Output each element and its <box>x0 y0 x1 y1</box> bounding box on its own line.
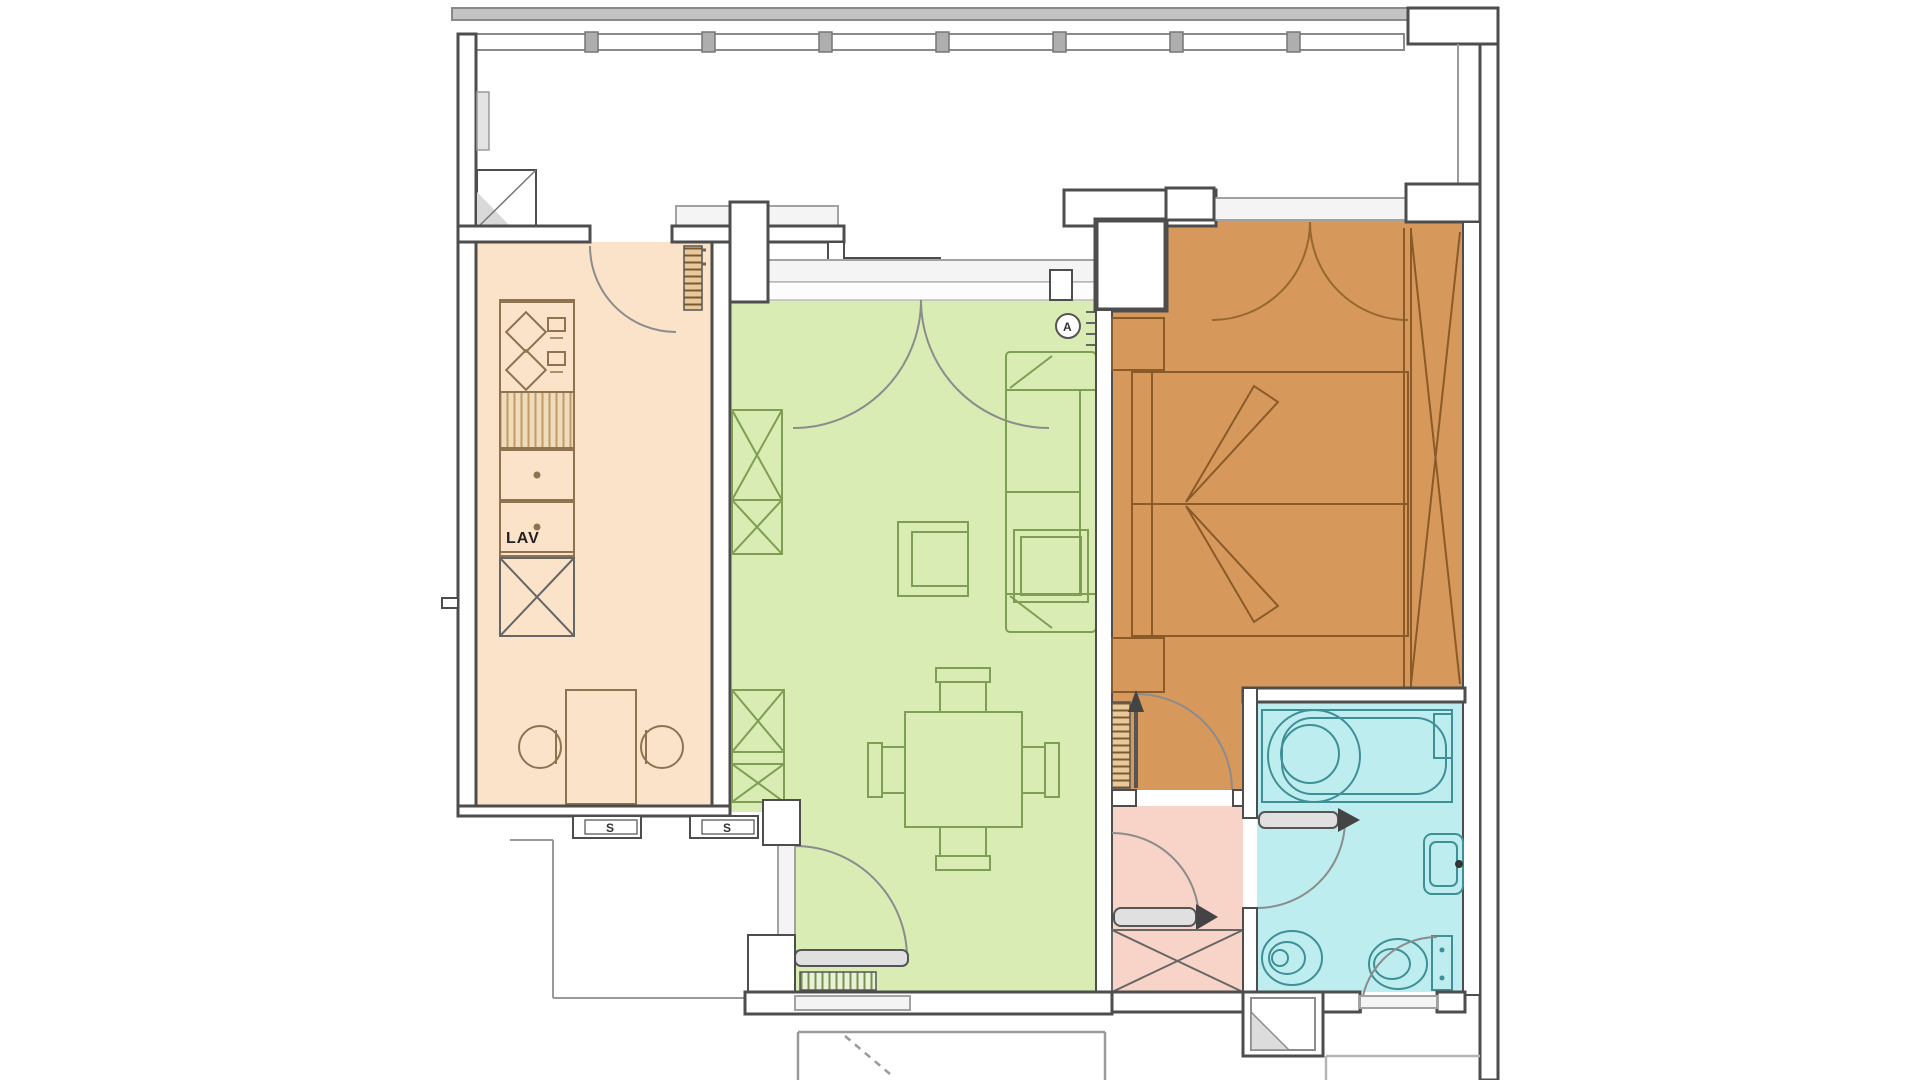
bath-top-wall <box>1243 688 1465 702</box>
kitchen-radiator <box>684 246 702 310</box>
bedroom-radiator <box>1112 702 1130 788</box>
living-side-wall-bottom <box>748 935 795 994</box>
balcony-door-sill <box>795 996 910 1010</box>
detector-label: A <box>1063 320 1072 334</box>
shutter-right-label: S <box>723 821 731 835</box>
terrace-railing <box>452 8 1408 52</box>
bath-bottom-wall-right <box>1437 992 1465 1012</box>
bedroom-right-wall <box>1463 222 1480 995</box>
bedroom-topleft-wall <box>1166 188 1214 220</box>
shutter-box-left: S <box>573 816 641 838</box>
bath-bottom-wall-left <box>1323 992 1360 1012</box>
living-window-outer <box>766 260 1096 282</box>
bedroom-topright-wall <box>1406 184 1480 222</box>
drainer <box>500 392 574 448</box>
hall-bottom-wall <box>1112 992 1243 1012</box>
bath-door-sill <box>1360 996 1437 1008</box>
right-exterior-wall <box>1480 44 1498 1080</box>
wall-tick <box>442 598 458 608</box>
entrance-landing <box>1243 992 1323 1056</box>
terrace-lower-boundary <box>510 840 745 998</box>
kitchen-bottom-wall <box>458 806 730 816</box>
floor-plan: LAV S <box>0 0 1920 1080</box>
bedroom-window <box>1214 198 1406 220</box>
kitchen-top-wall-left <box>458 226 590 242</box>
left-exterior-wall <box>458 34 476 816</box>
balcony <box>798 1032 1480 1080</box>
column-jog <box>1050 270 1072 300</box>
living-window-inner <box>766 282 1096 300</box>
living-side-wall-top <box>763 800 800 845</box>
vent-shaft <box>477 170 536 228</box>
living-bedroom-wall <box>1096 310 1112 995</box>
floor-plan-page: LAV S <box>0 0 1920 1080</box>
sink-label: LAV <box>506 530 540 547</box>
drain-pipe <box>477 92 489 150</box>
hall-top-wall-left <box>1112 790 1136 806</box>
hallway-room <box>1112 806 1243 992</box>
living-topleft-wall <box>730 202 768 302</box>
bath-left-wall-lower <box>1243 908 1257 995</box>
structural-column <box>1096 220 1166 310</box>
shutter-left-label: S <box>606 821 614 835</box>
bath-left-wall-upper <box>1243 688 1257 818</box>
kitchen-living-wall <box>712 242 730 816</box>
living-radiator <box>800 972 876 990</box>
shutter-box-right: S <box>690 816 758 838</box>
top-right-wall <box>1408 8 1498 44</box>
